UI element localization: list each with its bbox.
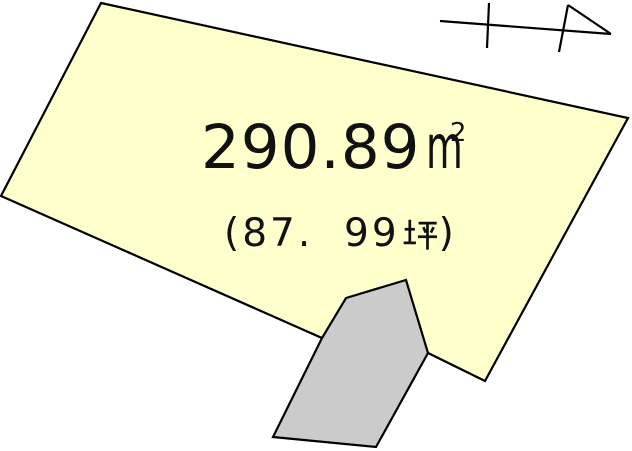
square-meter-m-glyph: m [426, 117, 463, 178]
tsubo-open-paren: ( [224, 214, 242, 253]
area-sqm-value: 290.89 [201, 117, 420, 178]
north-arrow-icon [440, 3, 611, 52]
area-tsubo-label: (87. 99 坪) [224, 214, 457, 253]
tsubo-close-paren: ) [439, 214, 457, 253]
area-sqm-unit: m2 [426, 117, 466, 178]
area-sqm-label: 290.89m2 [201, 117, 466, 193]
land-plot-diagram: 290.89m2 (87. 99 坪) [0, 0, 632, 451]
area-tsubo-value: 87. 99 [242, 214, 399, 253]
tsubo-unit-glyph [403, 217, 437, 251]
